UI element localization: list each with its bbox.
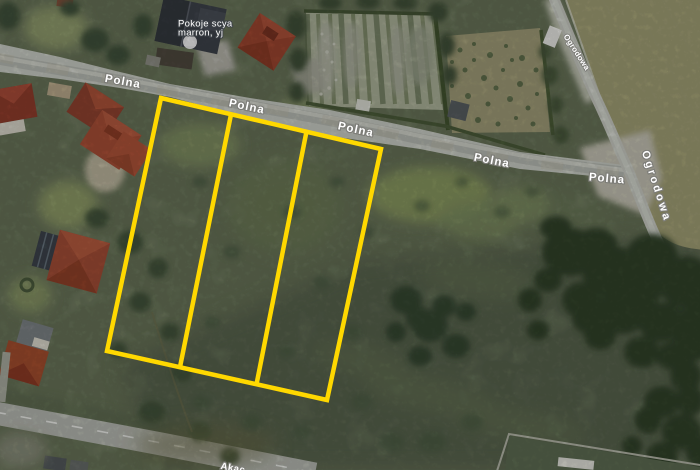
svg-text:marron, yj: marron, yj: [178, 28, 223, 39]
